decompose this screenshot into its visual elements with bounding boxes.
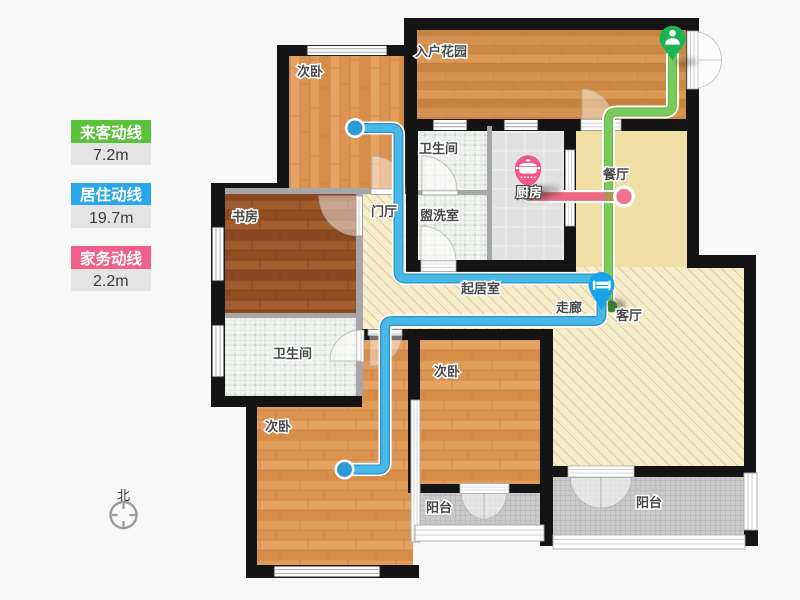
svg-text:7.2m: 7.2m — [93, 147, 129, 164]
svg-text:盥洗室: 盥洗室 — [420, 208, 459, 223]
svg-text:走廊: 走廊 — [556, 300, 582, 315]
svg-text:阳台: 阳台 — [426, 500, 452, 515]
svg-text:居住动线: 居住动线 — [80, 185, 143, 204]
svg-text:次卧: 次卧 — [265, 419, 291, 434]
svg-text:卫生间: 卫生间 — [419, 141, 458, 156]
svg-text:起居室: 起居室 — [460, 281, 500, 296]
svg-text:次卧: 次卧 — [297, 64, 323, 79]
svg-text:餐厅: 餐厅 — [602, 167, 629, 182]
svg-text:家务动线: 家务动线 — [80, 249, 143, 268]
svg-text:19.7m: 19.7m — [89, 210, 133, 227]
svg-text:北: 北 — [117, 488, 130, 503]
svg-text:入户花园: 入户花园 — [415, 44, 467, 59]
svg-text:次卧: 次卧 — [434, 364, 460, 379]
svg-text:书房: 书房 — [232, 209, 258, 224]
svg-text:客厅: 客厅 — [616, 308, 642, 323]
svg-text:厨房: 厨房 — [516, 185, 542, 200]
svg-text:卫生间: 卫生间 — [273, 346, 312, 361]
svg-text:阳台: 阳台 — [636, 495, 662, 510]
svg-text:2.2m: 2.2m — [93, 273, 129, 290]
svg-text:来客动线: 来客动线 — [79, 123, 143, 142]
svg-text:门厅: 门厅 — [371, 204, 397, 219]
